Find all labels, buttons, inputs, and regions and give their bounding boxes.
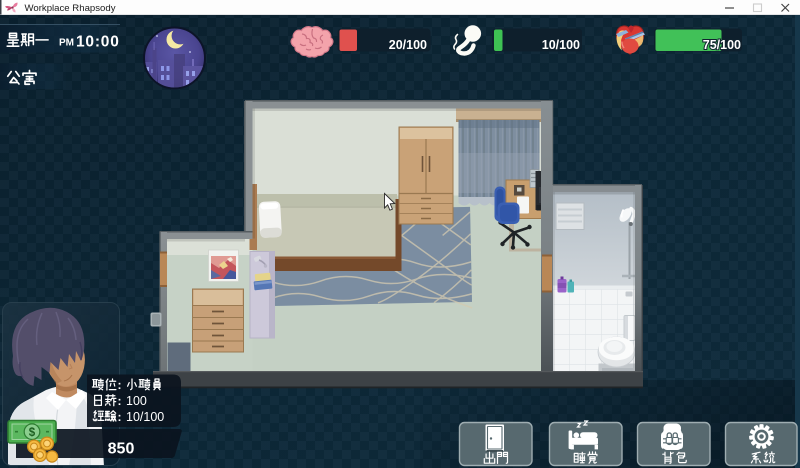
svg-text:850: 850 [108, 441, 135, 458]
svg-text::: : [118, 378, 122, 392]
svg-text:Workplace Rhapsody: Workplace Rhapsody [25, 3, 116, 14]
svg-text:10:00: 10:00 [76, 34, 120, 51]
svg-text:75/100: 75/100 [703, 38, 741, 52]
svg-text:PM: PM [59, 38, 74, 49]
svg-text:100: 100 [126, 394, 147, 408]
svg-text:10/100: 10/100 [126, 410, 164, 424]
svg-text::: : [118, 410, 122, 424]
svg-text:$: $ [29, 427, 36, 439]
svg-text::: : [118, 394, 122, 408]
svg-text:20/100: 20/100 [389, 38, 427, 52]
svg-text:10/100: 10/100 [542, 38, 580, 52]
